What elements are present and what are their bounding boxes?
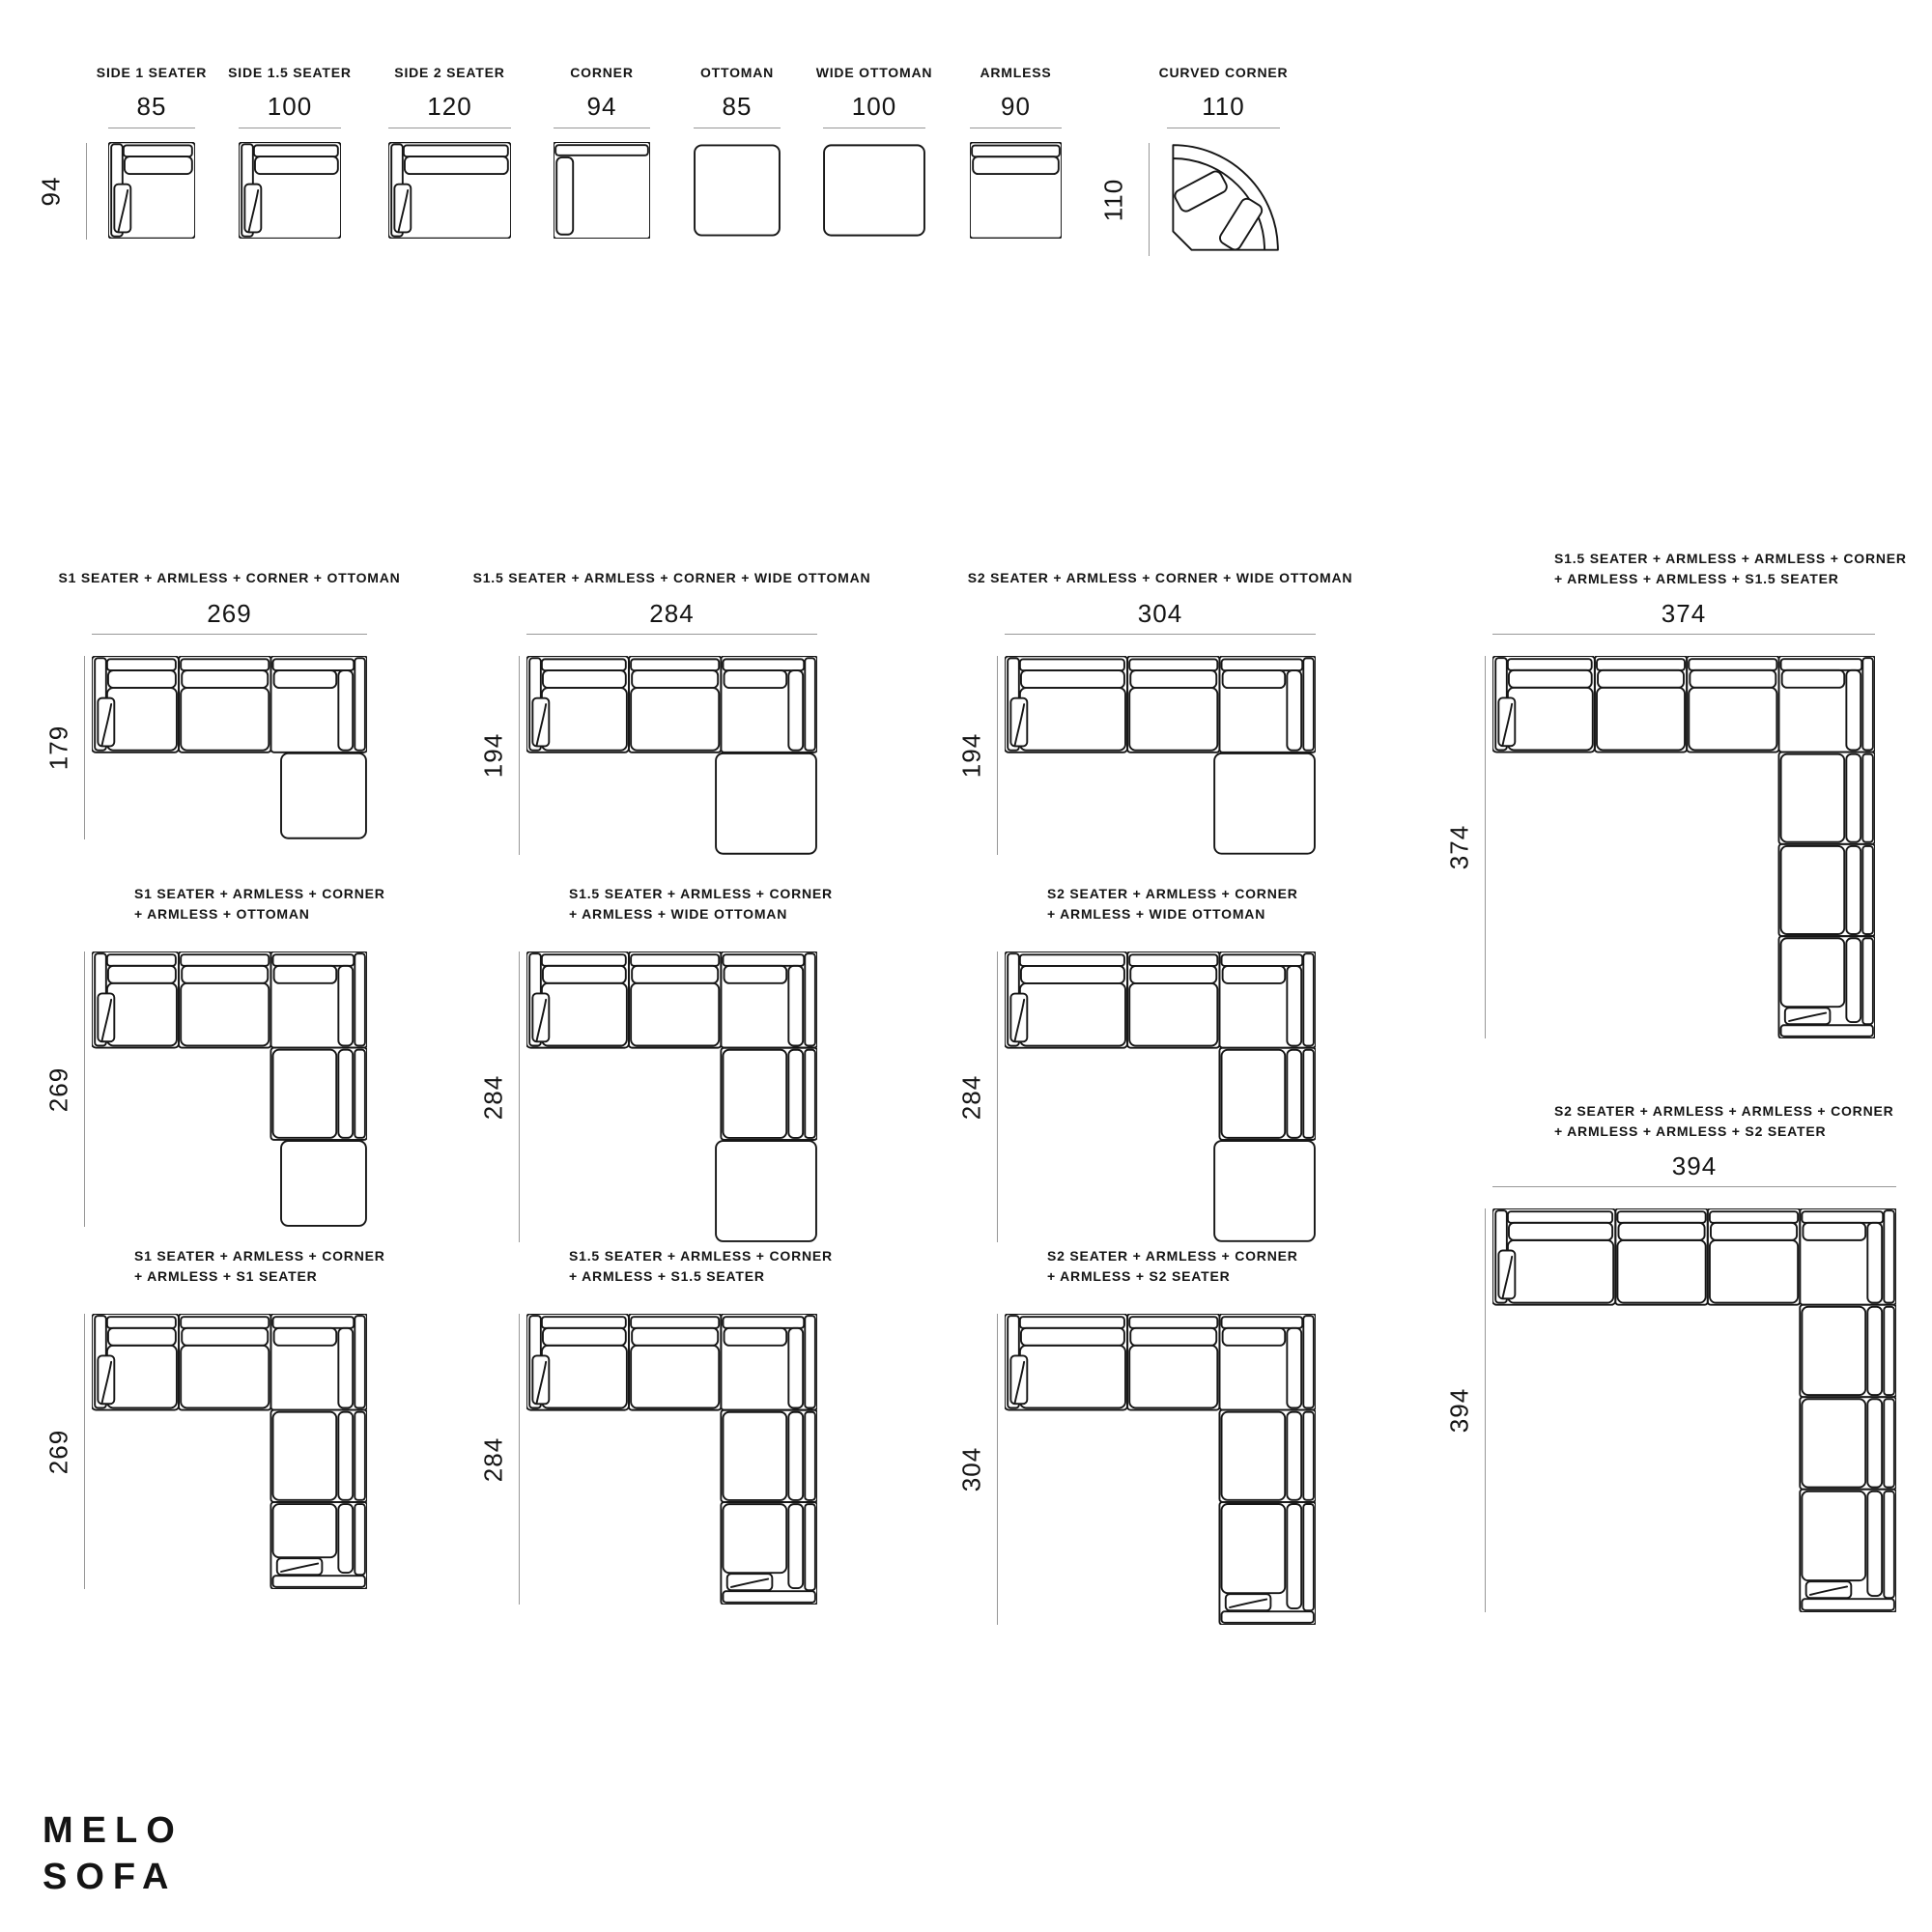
config-height-dim: 269 — [47, 952, 92, 1227]
height-dim-value: 284 — [478, 1436, 508, 1481]
dim-line — [519, 952, 520, 1242]
brand-line1: MELO — [43, 1808, 184, 1855]
config-drawing — [92, 656, 367, 839]
config-name: S1.5 SEATER + ARMLESS + ARMLESS + CORNER… — [1448, 549, 1907, 589]
module-name: ARMLESS — [980, 64, 1051, 81]
config-s2-armless-corner-wide-ottoman: S2 SEATER + ARMLESS + CORNER + WIDE OTTO… — [960, 569, 1316, 855]
dim-line — [970, 128, 1062, 128]
module-name: SIDE 2 SEATER — [394, 64, 504, 81]
config-drawing — [92, 952, 367, 1227]
depth-dim-value: 94 — [37, 177, 67, 207]
config-height-dim: 284 — [482, 952, 526, 1242]
modules-depth-dim: 94 — [33, 143, 87, 240]
config-width-dim: 394 — [1492, 1150, 1896, 1182]
config-s1-armless-corner-ottoman: S1 SEATER + ARMLESS + CORNER + OTTOMAN 2… — [47, 569, 367, 839]
module-width-dim: 100 — [239, 89, 341, 124]
config-s15-armless-corner-armless-s15: S1.5 SEATER + ARMLESS + CORNER + ARMLESS… — [482, 1246, 833, 1605]
config-drawing — [1492, 656, 1875, 1038]
module-width-dim: 85 — [694, 89, 781, 124]
dim-line — [554, 128, 650, 128]
dim-line — [997, 1314, 998, 1625]
melo-sofa-spec-sheet: 94 SIDE 1 SEATER 85 SIDE 1.5 SEATER 100 … — [0, 0, 1932, 1932]
module-side-1-5-seater: SIDE 1.5 SEATER 100 — [239, 64, 341, 239]
module-curved-corner: CURVED CORNER 110 — [1167, 64, 1280, 255]
config-height-dim: 179 — [47, 656, 92, 839]
config-name: S2 SEATER + ARMLESS + CORNER + ARMLESS +… — [960, 1246, 1298, 1287]
module-drawing-side-1-seater — [108, 142, 195, 239]
height-dim-value: 179 — [43, 725, 73, 770]
height-dim-value: 284 — [956, 1074, 986, 1119]
module-name: SIDE 1 SEATER — [97, 64, 207, 81]
config-height-dim: 194 — [960, 656, 1005, 855]
module-side-1-seater: SIDE 1 SEATER 85 — [108, 64, 195, 239]
config-name: S1.5 SEATER + ARMLESS + CORNER + WIDE OT… — [526, 569, 817, 587]
dim-line — [92, 634, 367, 635]
config-s1-armless-corner-armless-s1: S1 SEATER + ARMLESS + CORNER + ARMLESS +… — [47, 1246, 385, 1589]
dim-line — [388, 128, 511, 128]
dim-line — [519, 656, 520, 855]
config-drawing — [92, 1314, 367, 1589]
dim-line — [1492, 634, 1875, 635]
config-s2-armless-corner-armless-s2: S2 SEATER + ARMLESS + CORNER + ARMLESS +… — [960, 1246, 1316, 1625]
module-width-dim: 94 — [554, 89, 650, 124]
module-side-2-seater: SIDE 2 SEATER 120 — [388, 64, 511, 239]
config-drawing — [1492, 1208, 1896, 1612]
dim-line — [108, 128, 195, 128]
height-dim-value: 269 — [43, 1429, 73, 1473]
module-width-dim: 120 — [388, 89, 511, 124]
config-s15-armless-corner-wide-ottoman: S1.5 SEATER + ARMLESS + CORNER + WIDE OT… — [482, 569, 817, 855]
dim-line — [694, 128, 781, 128]
config-name: S1 SEATER + ARMLESS + CORNER + ARMLESS +… — [47, 884, 385, 924]
config-height-dim: 194 — [482, 656, 526, 855]
module-name: WIDE OTTOMAN — [816, 64, 933, 81]
config-height-dim: 374 — [1448, 656, 1492, 1038]
config-drawing — [526, 1314, 817, 1605]
module-width-dim: 85 — [108, 89, 195, 124]
module-drawing-side-1-5-seater — [239, 142, 341, 239]
module-drawing-curved-corner — [1167, 142, 1280, 255]
module-drawing-side-2-seater — [388, 142, 511, 239]
module-name: SIDE 1.5 SEATER — [228, 64, 352, 81]
config-width-dim: 269 — [92, 597, 367, 630]
module-drawing-corner — [554, 142, 650, 239]
config-width-dim: 374 — [1492, 597, 1875, 630]
dim-line — [86, 143, 87, 240]
dim-line — [1167, 128, 1280, 128]
height-dim-value: 194 — [956, 733, 986, 778]
brand-logo: MELO SOFA — [43, 1808, 184, 1901]
config-drawing — [1005, 656, 1316, 855]
config-width-dim: 304 — [1005, 597, 1316, 630]
dim-line — [997, 656, 998, 855]
config-drawing — [526, 656, 817, 855]
config-name: S1 SEATER + ARMLESS + CORNER + OTTOMAN — [92, 569, 367, 587]
height-dim-value: 374 — [1444, 825, 1474, 869]
dim-line — [1485, 1208, 1486, 1612]
dim-line — [1149, 143, 1150, 256]
config-name: S1 SEATER + ARMLESS + CORNER + ARMLESS +… — [47, 1246, 385, 1287]
height-dim-value: 194 — [478, 733, 508, 778]
dim-line — [1005, 634, 1316, 635]
module-drawing-armless — [970, 142, 1062, 239]
config-height-dim: 269 — [47, 1314, 92, 1589]
config-s2-double-armless-corner-s2: S2 SEATER + ARMLESS + ARMLESS + CORNER +… — [1448, 1101, 1896, 1612]
brand-line2: SOFA — [43, 1855, 184, 1901]
module-name: OTTOMAN — [700, 64, 774, 81]
config-drawing — [1005, 1314, 1316, 1625]
dim-line — [84, 656, 85, 839]
height-dim-value: 284 — [478, 1074, 508, 1119]
dim-line — [519, 1314, 520, 1605]
dim-line — [84, 1314, 85, 1589]
dim-line — [1485, 656, 1486, 1038]
config-name: S2 SEATER + ARMLESS + CORNER + ARMLESS +… — [960, 884, 1298, 924]
dim-line — [997, 952, 998, 1242]
config-name: S2 SEATER + ARMLESS + CORNER + WIDE OTTO… — [1005, 569, 1316, 587]
config-name: S2 SEATER + ARMLESS + ARMLESS + CORNER +… — [1448, 1101, 1894, 1142]
module-drawing-ottoman — [694, 142, 781, 239]
config-drawing — [526, 952, 817, 1242]
config-width-dim: 284 — [526, 597, 817, 630]
dim-line — [1492, 1186, 1896, 1187]
config-name: S1.5 SEATER + ARMLESS + CORNER + ARMLESS… — [482, 1246, 833, 1287]
config-s2-armless-corner-armless-wide-ottoman: S2 SEATER + ARMLESS + CORNER + ARMLESS +… — [960, 884, 1316, 1242]
config-s15-armless-corner-armless-wide-ottoman: S1.5 SEATER + ARMLESS + CORNER + ARMLESS… — [482, 884, 833, 1242]
height-dim-value: 394 — [1444, 1388, 1474, 1433]
module-ottoman: OTTOMAN 85 — [694, 64, 781, 239]
module-width-dim: 110 — [1167, 89, 1280, 124]
height-dim-value: 269 — [43, 1066, 73, 1111]
config-height-dim: 304 — [960, 1314, 1005, 1625]
config-height-dim: 394 — [1448, 1208, 1492, 1612]
module-name: CORNER — [570, 64, 633, 81]
config-s15-double-armless-corner-s15: S1.5 SEATER + ARMLESS + ARMLESS + CORNER… — [1448, 549, 1907, 1038]
module-corner: CORNER 94 — [554, 64, 650, 239]
module-armless: ARMLESS 90 — [970, 64, 1062, 239]
config-height-dim: 284 — [960, 952, 1005, 1242]
module-width-dim: 100 — [823, 89, 925, 124]
config-s1-armless-corner-armless-ottoman: S1 SEATER + ARMLESS + CORNER + ARMLESS +… — [47, 884, 385, 1227]
module-wide-ottoman: WIDE OTTOMAN 100 — [823, 64, 925, 239]
depth-dim-value: 110 — [1099, 178, 1129, 220]
module-name: CURVED CORNER — [1159, 64, 1289, 81]
dim-line — [526, 634, 817, 635]
dim-line — [84, 952, 85, 1227]
curved-corner-depth-dim: 110 — [1095, 143, 1150, 256]
config-height-dim: 284 — [482, 1314, 526, 1605]
dim-line — [823, 128, 925, 128]
module-width-dim: 90 — [970, 89, 1062, 124]
dim-line — [239, 128, 341, 128]
module-drawing-wide-ottoman — [823, 142, 925, 239]
config-drawing — [1005, 952, 1316, 1242]
config-name: S1.5 SEATER + ARMLESS + CORNER + ARMLESS… — [482, 884, 833, 924]
height-dim-value: 304 — [956, 1447, 986, 1492]
